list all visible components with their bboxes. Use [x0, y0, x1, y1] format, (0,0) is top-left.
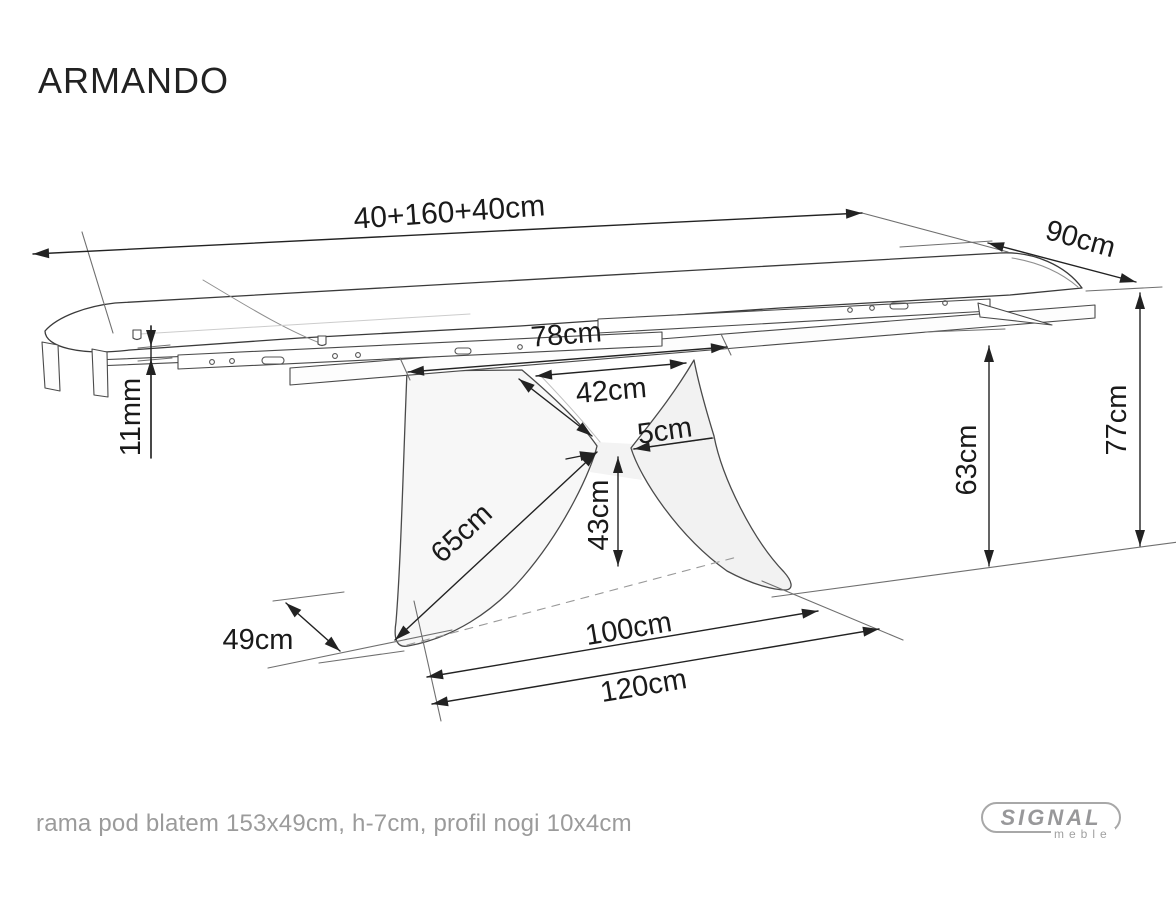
ext-total-right: [862, 213, 1008, 252]
dim-label-leg-top-opening: 42cm: [574, 372, 647, 410]
dim-label-waist-height: 43cm: [583, 480, 615, 551]
brand-logo: SIGNAL meble: [981, 802, 1121, 833]
alignment-peg: [133, 330, 141, 340]
floor-line-right: [772, 542, 1176, 597]
ext-base-right: [762, 581, 903, 640]
dim-line-foot-depth: [286, 603, 340, 651]
leaf-bracket-inner: [92, 349, 108, 397]
dim-label-base-outer: 120cm: [598, 663, 689, 709]
dim-label-depth: 90cm: [1042, 214, 1119, 264]
leaf-bracket-outer: [42, 342, 60, 391]
dim-label-clearance: 63cm: [951, 425, 983, 496]
technical-drawing: 40+160+40cm 90cm 78cm 42cm 5cm 11mm 43cm…: [0, 0, 1176, 900]
leg-right-blade: [631, 360, 791, 590]
brand-logo-text: SIGNAL: [1000, 807, 1101, 829]
dim-label-foot-depth: 49cm: [223, 624, 294, 656]
ext-77-top: [1086, 287, 1162, 291]
dim-label-height: 77cm: [1101, 385, 1133, 456]
alignment-peg: [318, 336, 326, 346]
dim-label-base-inner: 100cm: [583, 606, 674, 652]
ext-49-bottom: [319, 651, 404, 663]
dim-label-frame-span: 78cm: [530, 316, 603, 353]
dim-label-top-gap: 11mm: [115, 378, 147, 456]
dim-label-total-length: 40+160+40cm: [353, 189, 547, 235]
frame-spec-note: rama pod blatem 153x49cm, h-7cm, profil …: [36, 810, 632, 838]
brand-logo-subtext: meble: [1051, 828, 1115, 840]
ext-49-top: [273, 592, 344, 601]
leg-left-blade: [395, 370, 597, 646]
page-title: ARMANDO: [38, 60, 229, 102]
product-dimension-sheet: ARMANDO: [0, 0, 1176, 900]
